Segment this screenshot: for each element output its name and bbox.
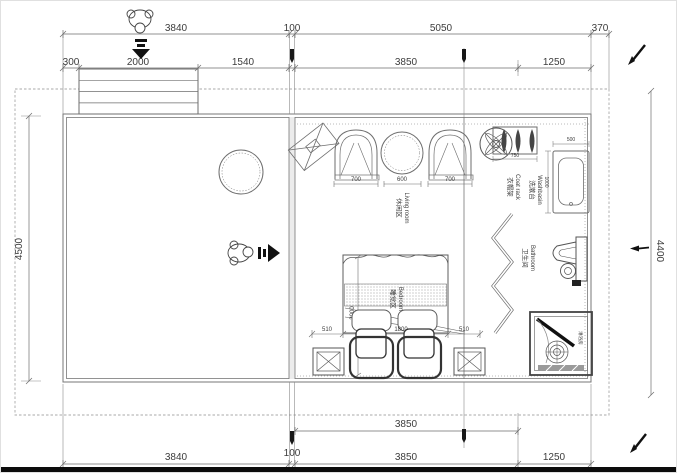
dim-bed-510-left: 510 xyxy=(322,327,333,333)
dim-bed-510-right: 510 xyxy=(459,327,470,333)
dim-rack-750: 750 xyxy=(511,153,520,159)
dim-right-4400 xyxy=(648,88,654,398)
dim-basin xyxy=(545,141,589,213)
label-bathroom-en: Bathroom xyxy=(529,245,535,271)
armchair-right xyxy=(429,130,473,180)
dim-table-600: 600 xyxy=(397,177,408,183)
dim-basin-500: 500 xyxy=(567,137,576,143)
dim-top-2000: 2000 xyxy=(127,57,150,68)
dim-row-bottom2 xyxy=(60,460,594,468)
page-border-bar xyxy=(1,467,677,473)
pen-marker-top-center xyxy=(290,49,294,63)
dim-basin-1000: 1000 xyxy=(543,176,549,187)
zigzag-screen xyxy=(493,214,512,333)
arrow-down-icon xyxy=(132,39,150,59)
nightstand-left xyxy=(313,348,344,375)
bedroom-chair-left xyxy=(350,329,393,378)
dim-left-4500-label: 4500 xyxy=(14,237,25,260)
dim-top-1250: 1250 xyxy=(543,57,566,68)
pen-marker-bottom-center xyxy=(290,431,294,445)
dim-bottom-1250: 1250 xyxy=(543,452,566,463)
washbasin xyxy=(553,151,589,213)
label-shower-zh: 淋浴房 xyxy=(577,331,584,345)
dim-top-1540: 1540 xyxy=(232,57,255,68)
pen-marker-bottom-inner xyxy=(462,429,466,443)
floor-plan-sheet: 3840 100 5050 370 300 2000 1540 3850 125… xyxy=(0,0,677,473)
dim-top-300: 300 xyxy=(63,57,80,68)
toilet xyxy=(553,237,587,286)
pen-icon-bottom-right xyxy=(630,434,646,453)
label-bedroom-zh: 睡觉区 xyxy=(389,289,398,309)
label-bathroom-zh: 卫生间 xyxy=(521,248,530,268)
dim-top-3840: 3840 xyxy=(165,23,188,34)
dim-chair-left-700: 700 xyxy=(351,177,362,183)
dim-left-4500 xyxy=(26,113,32,384)
dim-bottom-100: 100 xyxy=(284,448,301,459)
dim-right-4400-label: 4400 xyxy=(654,240,665,263)
pen-icon-top-right xyxy=(628,45,645,65)
stairs xyxy=(79,69,198,114)
shower-door xyxy=(537,319,574,346)
armchair-left xyxy=(335,130,379,180)
pen-icon-mid-right xyxy=(630,246,649,252)
dim-top-5050: 5050 xyxy=(430,23,453,34)
plant-stand xyxy=(288,123,339,171)
fan-icon xyxy=(480,128,512,160)
dim-top-100: 100 xyxy=(284,23,301,34)
label-coat-rack-zh: 衣帽架 xyxy=(506,177,515,197)
dim-chair-right-700: 700 xyxy=(445,177,456,183)
pen-marker-top-inner xyxy=(462,49,466,63)
bedroom-chair-right xyxy=(398,329,441,378)
drain-icon xyxy=(546,341,568,363)
label-bedroom-en: Bedroom xyxy=(397,287,403,311)
label-washbasin-en: Washbasin xyxy=(536,175,542,204)
label-living-room-zh: 休闲区 xyxy=(395,198,404,218)
label-washbasin-zh: 洗漱台 xyxy=(528,180,537,200)
floor-plan-canvas: 3840 100 5050 370 300 2000 1540 3850 125… xyxy=(1,1,677,473)
dim-bottom-3850: 3850 xyxy=(395,452,418,463)
dim-top-370: 370 xyxy=(592,23,609,34)
pillow-left xyxy=(352,310,391,331)
round-table-living xyxy=(381,132,423,174)
person-entry-icon xyxy=(127,10,153,33)
label-coat-rack-en: Coat rack xyxy=(514,174,520,201)
round-table-left-room xyxy=(219,150,263,194)
person-icon xyxy=(228,241,253,265)
dim-top-3850: 3850 xyxy=(395,57,418,68)
dim-bottom-3840: 3840 xyxy=(165,452,188,463)
nightstand-right xyxy=(454,348,485,375)
arrow-right-icon xyxy=(258,244,280,262)
dim-bottom-3850-upper: 3850 xyxy=(395,419,418,430)
label-living-room-en: Living room xyxy=(403,192,409,223)
